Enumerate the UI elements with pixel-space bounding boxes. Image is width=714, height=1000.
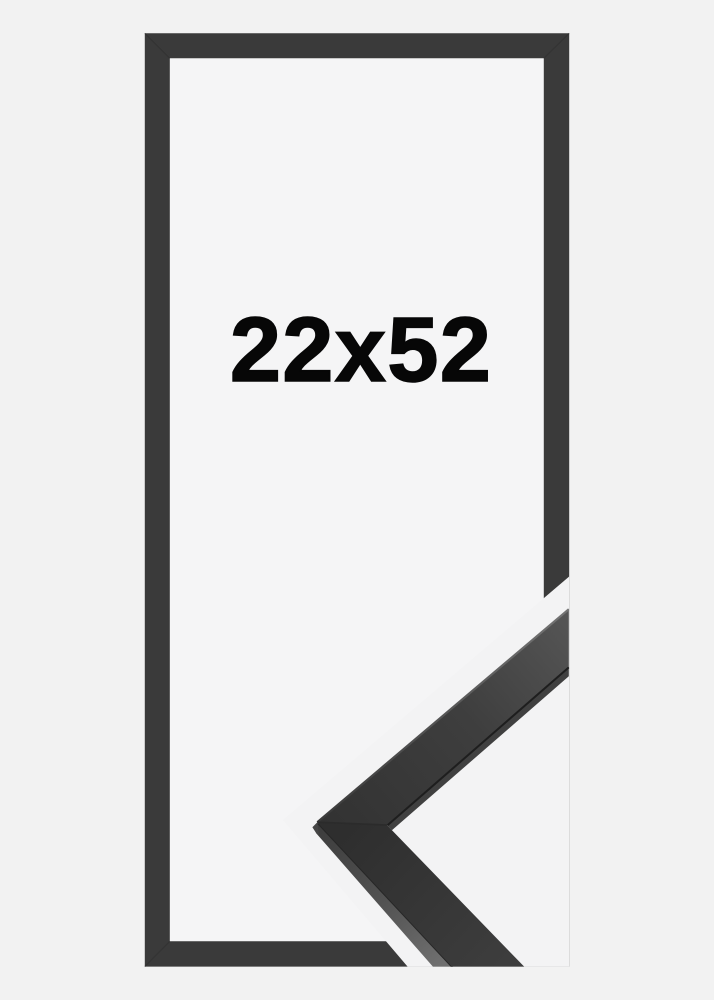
svg-text:22x52: 22x52 xyxy=(230,299,492,401)
